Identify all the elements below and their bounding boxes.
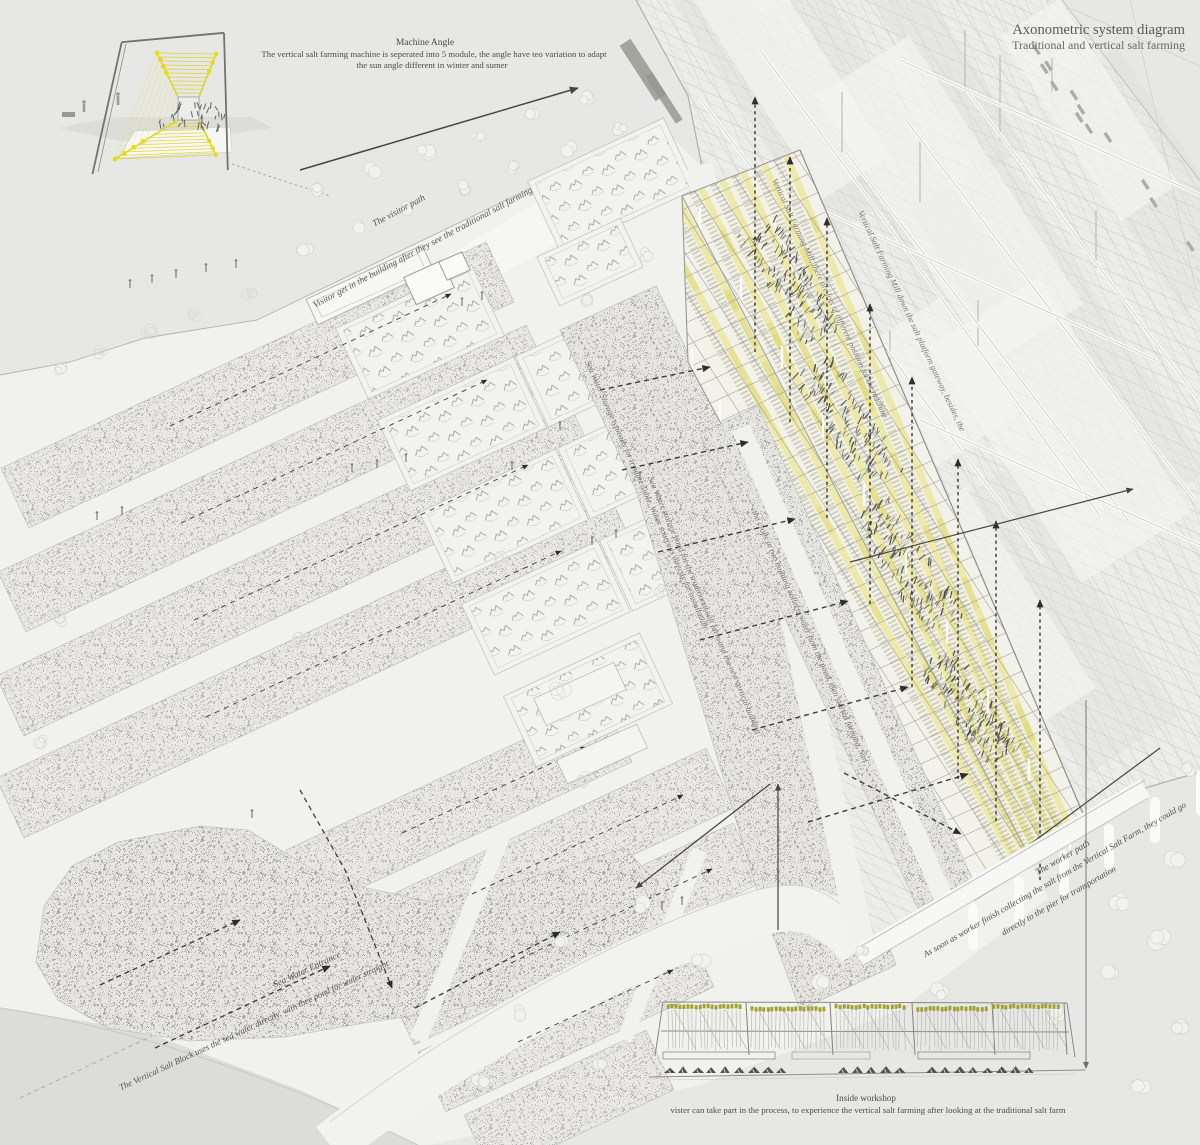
svg-text:Inside workshop: Inside workshop (836, 1093, 896, 1103)
svg-text:Machine Angle: Machine Angle (396, 38, 454, 48)
svg-text:the sun angle different in win: the sun angle different in winter and su… (356, 60, 507, 70)
svg-text:Axonometric system diagram: Axonometric system diagram (1012, 22, 1185, 38)
svg-text:Traditional and vertical salt: Traditional and vertical salt farming (1012, 38, 1185, 52)
svg-text:The vertical salt farming mach: The vertical salt farming machine is sep… (261, 49, 607, 59)
svg-text:vister can take part in the pr: vister can take part in the process, to … (670, 1105, 1065, 1115)
